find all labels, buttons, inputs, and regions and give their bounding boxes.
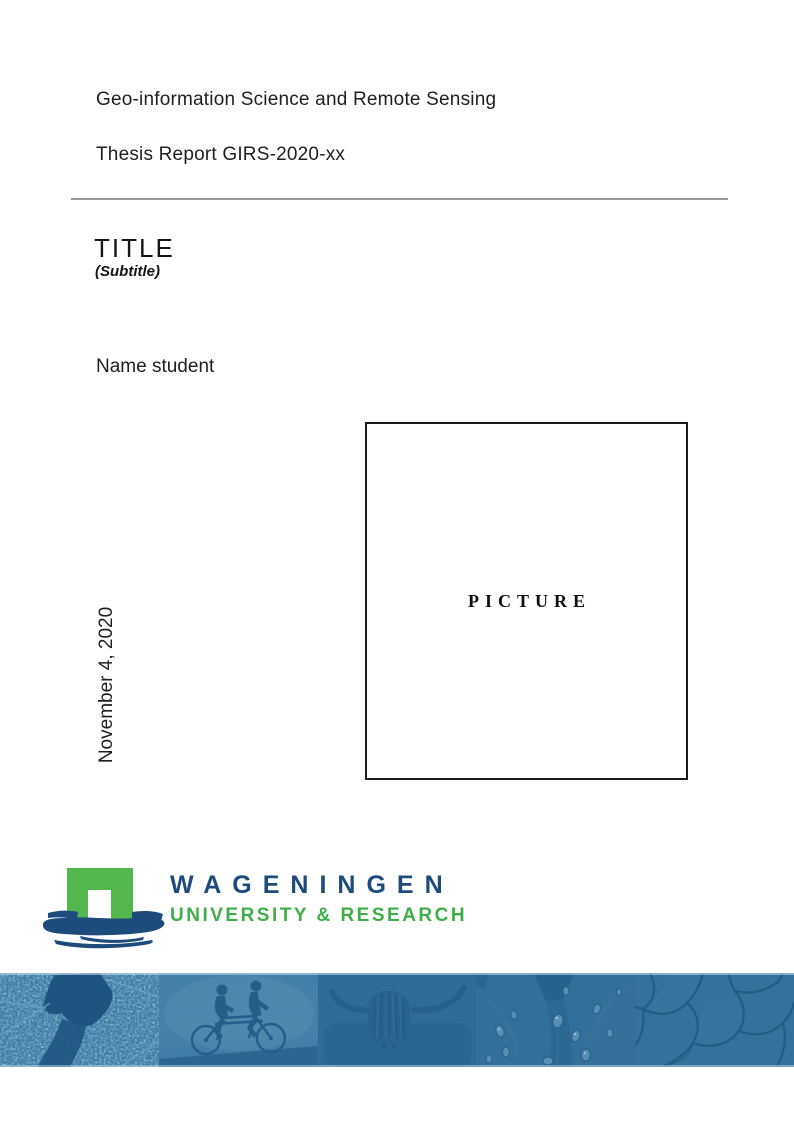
banner-image-cracked-earth-icon <box>635 973 794 1067</box>
date-vertical: November 4, 2020 <box>96 607 118 763</box>
wur-tagline: UNIVERSITY & RESEARCH <box>170 906 467 925</box>
banner-image-leaf-water-droplets-icon <box>476 973 635 1067</box>
report-id: Thesis Report GIRS-2020-xx <box>96 144 345 166</box>
banner-image-highland-cow-icon <box>318 973 477 1067</box>
banner-image-aerial-map-icon <box>0 973 159 1067</box>
footer-photo-banner <box>0 973 794 1067</box>
program-name: Geo-information Science and Remote Sensi… <box>96 89 496 111</box>
page-title: TITLE <box>94 233 175 264</box>
wur-wordmark: WAGENINGEN <box>170 873 454 898</box>
page-subtitle: (Subtitle) <box>95 263 160 280</box>
picture-placeholder-box: PICTURE <box>365 422 688 780</box>
picture-placeholder-label: PICTURE <box>462 591 591 612</box>
thesis-cover-page: Geo-information Science and Remote Sensi… <box>0 0 794 1123</box>
wur-arch-brush-logo-icon <box>40 858 172 962</box>
divider-rule <box>71 198 728 200</box>
author-name: Name student <box>96 356 214 378</box>
banner-image-tandem-cyclists-icon <box>159 973 318 1067</box>
